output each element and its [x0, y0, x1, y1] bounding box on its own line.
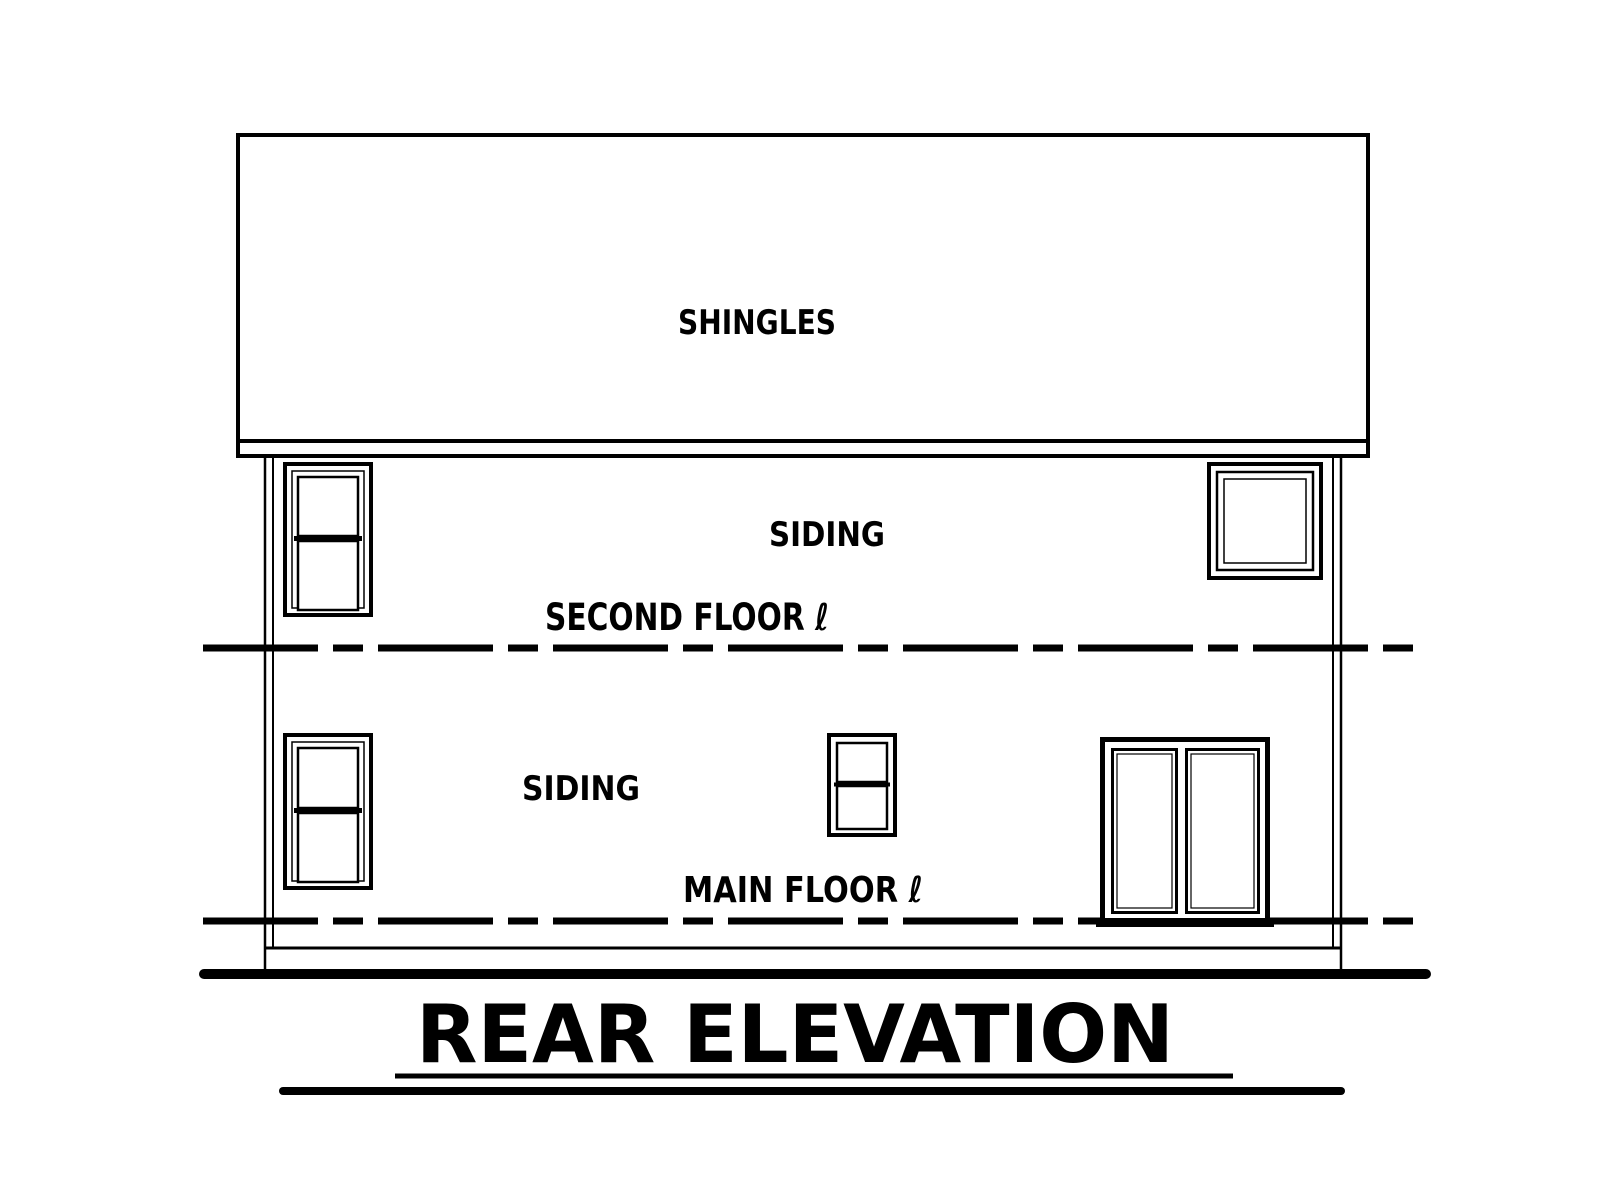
window-upper-left	[285, 464, 371, 615]
main-floor-label: MAIN FLOOR ℓ	[683, 870, 923, 911]
window-sash-bottom	[837, 786, 887, 829]
drawing-sheet: SHINGLES	[0, 0, 1600, 1200]
upper-siding-label: SIDING	[769, 515, 885, 555]
door-panel-right	[1187, 750, 1259, 913]
window-pane	[1224, 479, 1306, 563]
roof-fascia-band	[238, 441, 1368, 456]
roof: SHINGLES	[238, 135, 1368, 456]
title-block: REAR ELEVATION	[283, 988, 1341, 1091]
main-siding-label: SIDING	[522, 769, 640, 809]
door-panel-left	[1113, 750, 1177, 913]
second-floor-label: SECOND FLOOR ℓ	[545, 596, 829, 639]
window-lower-left	[285, 735, 371, 888]
window-sash-top	[298, 477, 358, 536]
rear-elevation-drawing: SHINGLES	[0, 0, 1600, 1200]
roof-outline	[238, 135, 1368, 441]
window-sash-bottom	[298, 541, 358, 610]
window-sash-top	[837, 743, 887, 782]
window-small-center	[829, 735, 895, 835]
drawing-title: REAR ELEVATION	[416, 988, 1174, 1081]
roof-material-label: SHINGLES	[678, 303, 836, 343]
window-sash-top	[298, 748, 358, 808]
window-sash-bottom	[298, 813, 358, 882]
sliding-door	[1096, 740, 1274, 925]
window-upper-right	[1209, 464, 1321, 578]
